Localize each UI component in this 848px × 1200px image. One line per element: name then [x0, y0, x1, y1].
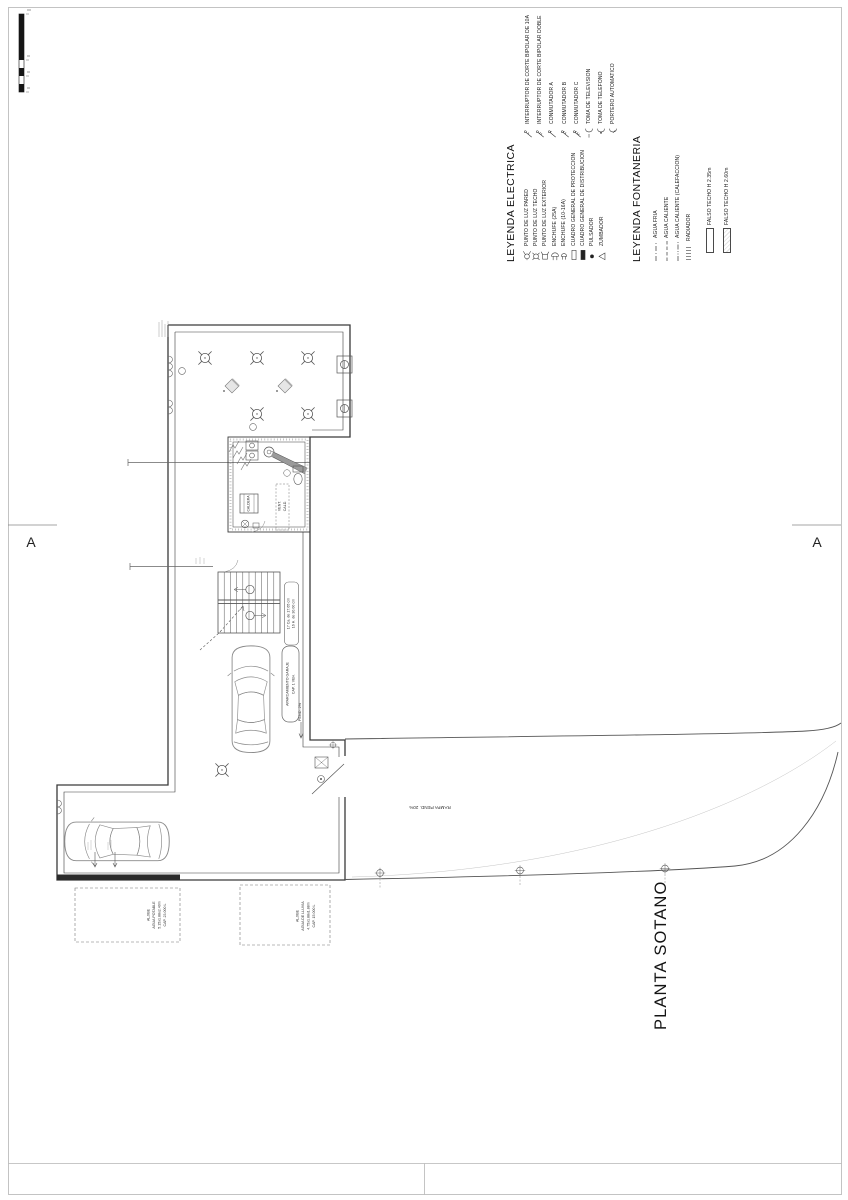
interruptor-10a-icon [523, 126, 533, 139]
legend-item: CONMUTADOR B [559, 13, 571, 139]
legend-item: FALSO TECHO H 2.60m [718, 168, 735, 253]
falso-techo-235-swatch [706, 228, 714, 253]
legend-item: CUADRO GENERAL DE DISTRIBUCION [578, 139, 587, 261]
agua-fria-line [653, 241, 659, 261]
legend-fontaneria-items: AGUA FRIA AGUA CALIENTE AGUA CALIENTE (C… [650, 155, 694, 261]
legend-item: INTERRUPTOR DE CORTE BIPOLAR DE 10A [522, 13, 534, 139]
svg-text:5.15x1.88x2.40m: 5.15x1.88x2.40m [158, 901, 162, 929]
legend-item: PUNTO DE LUZ EXTERIOR [541, 139, 550, 261]
svg-text:APARCAMIENTO GARAJE: APARCAMIENTO GARAJE [286, 662, 290, 706]
garage-bay: APARCAMIENTO GARAJE CAP. 1 VEH. PEND. 2% [215, 646, 303, 777]
legend-item: ENCHUFE (25A) [550, 139, 559, 261]
section-letter-left: A [26, 534, 36, 550]
legend-item: PORTERO AUTOMATICO [607, 13, 619, 139]
legend-item: ZUMBADOR [597, 139, 606, 261]
pipe-lines [128, 459, 310, 570]
car-top [65, 817, 170, 865]
envelope-walls [57, 325, 350, 880]
agua-calefaccion-line [675, 241, 681, 261]
svg-text:AGUA POTABLE: AGUA POTABLE [152, 901, 156, 929]
wall-vent [168, 356, 173, 377]
vent-label-1: VENT. [278, 501, 282, 511]
toma-tv-icon [584, 126, 594, 139]
legend-item: AGUA FRIA [650, 155, 661, 261]
legend-electrica-items: PUNTO DE LUZ PARED PUNTO DE LUZ TECHO PU… [522, 13, 620, 261]
legend-item: RADIADOR [683, 155, 694, 261]
conmutador-b-icon [560, 126, 570, 139]
svg-text:ALJIBE: ALJIBE [296, 909, 300, 922]
conmutador-a-icon [547, 126, 557, 139]
interruptor-doble-icon [535, 126, 545, 139]
staircase [200, 560, 280, 650]
ramp-label: RAMPA PEND. 20% [409, 805, 451, 810]
legend-item: AGUA CALIENTE (CALEFACCION) [672, 155, 683, 261]
legend-item: CUADRO GENERAL DE PROTECCION [569, 139, 578, 261]
pend-label: PEND. 2% [298, 702, 302, 721]
legend-item: FALSO TECHO H 2.35m [701, 168, 718, 253]
radiador-swatch [686, 247, 691, 260]
wall-vent [168, 400, 173, 414]
vent-label-2: CALD. [283, 501, 287, 512]
stair-note: 17 Ca. de 17.65 cm 16 H. de 30.00 cm [285, 582, 299, 645]
insulation-hatch [229, 441, 251, 470]
toma-telefono-icon [596, 126, 606, 139]
washer-units [246, 441, 258, 460]
legend-item: CONMUTADOR A [546, 13, 558, 139]
svg-text:16 H. de 30.00 cm: 16 H. de 30.00 cm [292, 599, 296, 628]
ramp: RAMPA PEND. 20% [345, 723, 841, 888]
legend-item: CONMUTADOR C [571, 13, 583, 139]
drawing-sheet: A A [0, 0, 848, 1200]
tank-lluvia [240, 885, 330, 945]
sink [284, 470, 291, 477]
door-swing [224, 560, 238, 572]
legend-item: PUNTO DE LUZ PARED [522, 139, 531, 261]
agua-caliente-line [664, 241, 670, 261]
svg-text:AGUA DE LLUVIA: AGUA DE LLUVIA [301, 901, 305, 931]
legend-item: TOMA DE TELEFONO [595, 13, 607, 139]
micro-annotations [159, 320, 168, 337]
section-markers: A A [8, 525, 841, 550]
car-top [228, 646, 275, 753]
svg-text:ALJIBE: ALJIBE [147, 908, 151, 921]
legend-item: ENCHUFE (10-16A) [560, 139, 569, 261]
legend-item: PULSADOR [588, 139, 597, 261]
caldera-label: CALDERA [247, 495, 251, 512]
legend-fontaneria-title: LEYENDA FONTANERIA [631, 136, 643, 262]
sheet-title: PLANTA SOTANO [652, 898, 686, 1030]
wall-vent [57, 800, 62, 814]
legend-item: INTERRUPTOR DE CORTE BIPOLAR DOBLE [534, 13, 546, 139]
scale-bar [19, 10, 31, 92]
legend-item: TOMA DE TELEVISION [583, 13, 595, 139]
section-letter-right: A [812, 534, 822, 550]
storage-room [168, 351, 352, 430]
zumbador-icon [597, 248, 607, 261]
falso-techo-260-swatch [723, 228, 731, 253]
lower-garage [57, 800, 169, 867]
svg-text:CAP. 23.000 L: CAP. 23.000 L [163, 904, 167, 927]
legend-block: LEYENDA ELECTRICA PUNTO DE LUZ PARED PUN… [505, 12, 737, 262]
water-tanks: ALJIBE AGUA POTABLE 5.15x1.88x2.40m CAP.… [75, 885, 330, 945]
falso-techo-items: FALSO TECHO H 2.35m FALSO TECHO H 2.60m [701, 168, 735, 253]
column-symbol [225, 379, 239, 393]
svg-text:17 Ca. de 17.65 cm: 17 Ca. de 17.65 cm [287, 598, 291, 629]
legend-electrica-title: LEYENDA ELECTRICA [505, 144, 517, 262]
svg-text:CAP. 1 VEH.: CAP. 1 VEH. [292, 674, 296, 694]
conmutador-c-icon [572, 126, 582, 139]
svg-text:4.75x1.88x1.88m: 4.75x1.88x1.88m [307, 902, 311, 930]
legend-item: AGUA CALIENTE [661, 155, 672, 261]
svg-text:CAP. 15.000 L: CAP. 15.000 L [312, 905, 316, 928]
portero-icon [608, 126, 618, 139]
column-symbol [278, 379, 292, 393]
legend-item: PUNTO DE LUZ TECHO [531, 139, 540, 261]
